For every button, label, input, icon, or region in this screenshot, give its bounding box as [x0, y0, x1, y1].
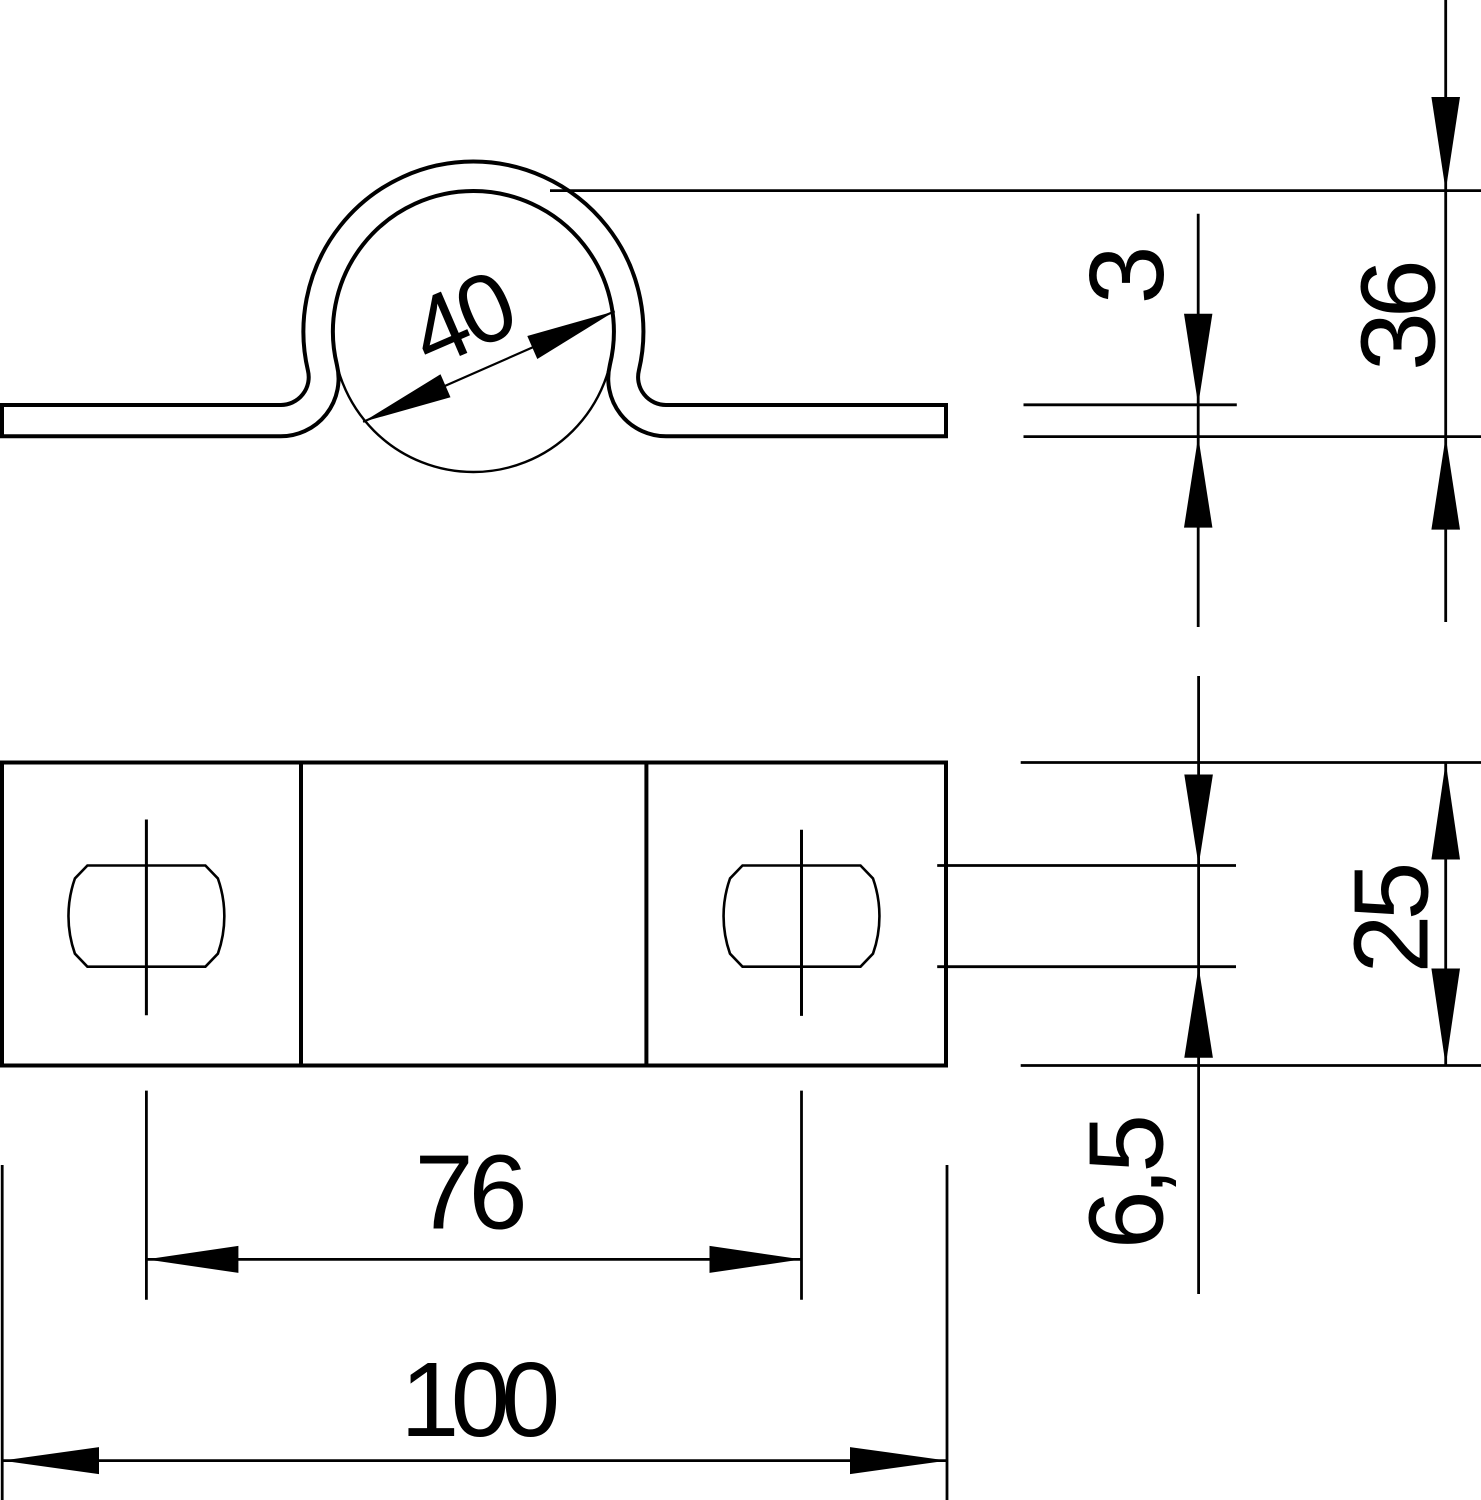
svg-text:36: 36	[1339, 263, 1457, 371]
svg-text:100: 100	[400, 1341, 556, 1459]
svg-text:3: 3	[1068, 249, 1186, 304]
svg-text:6,5: 6,5	[1068, 1118, 1186, 1249]
svg-text:76: 76	[415, 1134, 524, 1252]
svg-text:25: 25	[1332, 866, 1450, 974]
